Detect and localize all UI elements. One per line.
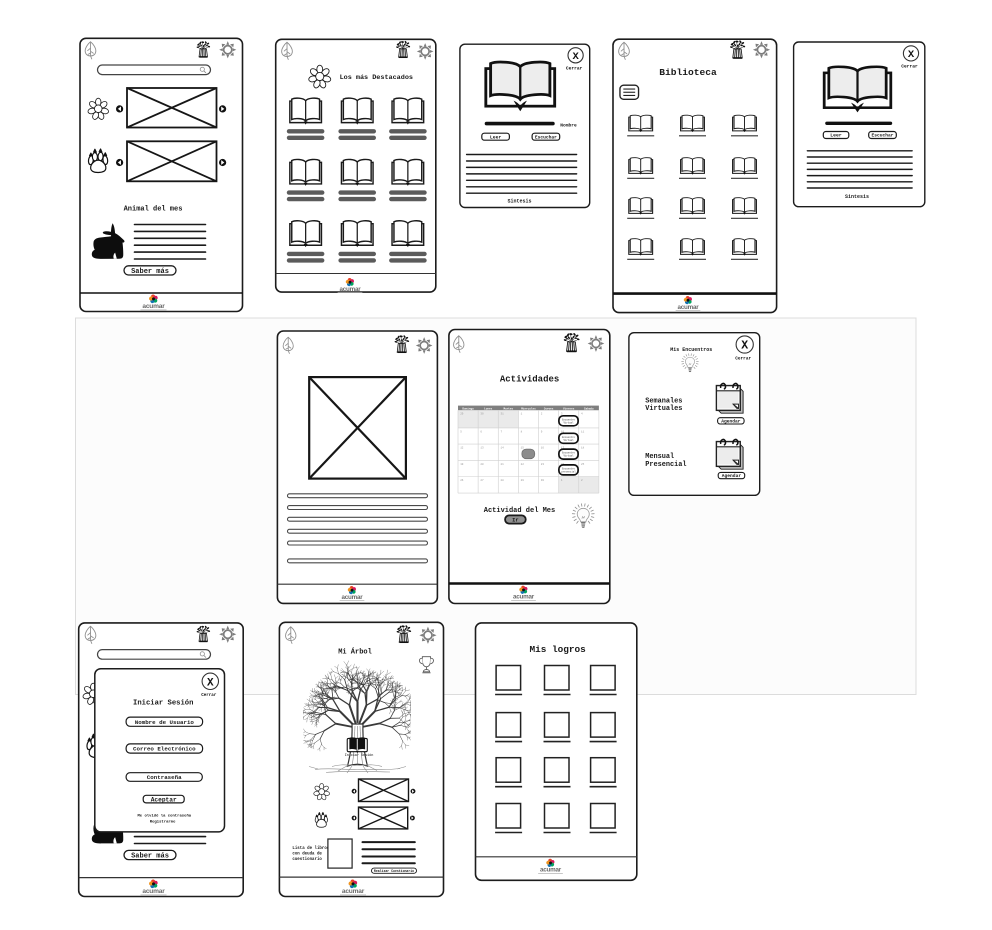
svg-text:Registrarme: Registrarme [150, 820, 176, 825]
svg-text:Saber más: Saber más [131, 268, 169, 276]
svg-text:Correo Electrónico: Correo Electrónico [133, 746, 196, 753]
svg-text:Miercoles: Miercoles [521, 406, 536, 410]
svg-text:Saber más: Saber más [131, 853, 169, 861]
svg-text:Contraseña: Contraseña [147, 774, 182, 781]
svg-text:Agendar: Agendar [721, 419, 741, 425]
svg-text:29: 29 [460, 413, 464, 416]
svg-text:Escuchar: Escuchar [535, 134, 557, 140]
svg-text:Presencial: Presencial [645, 461, 686, 469]
svg-text:acumar: acumar [341, 594, 363, 601]
svg-text:Nombre de Usuario: Nombre de Usuario [135, 719, 195, 726]
svg-text:27: 27 [480, 479, 484, 482]
svg-text:Mis logros: Mis logros [529, 644, 586, 655]
svg-text:Viernes: Viernes [563, 406, 575, 410]
svg-text:Iniciar Sesión: Iniciar Sesión [133, 700, 193, 708]
svg-text:Animal del mes: Animal del mes [124, 206, 183, 214]
svg-text:Mi Árbol: Mi Árbol [338, 648, 372, 657]
svg-text:Actividad del Mes: Actividad del Mes [484, 507, 555, 515]
svg-text:19: 19 [460, 463, 464, 466]
svg-text:Sintesis: Sintesis [845, 194, 869, 200]
svg-text:Actividades: Actividades [500, 375, 559, 385]
svg-text:29: 29 [521, 479, 525, 482]
svg-text:X: X [741, 340, 748, 353]
svg-text:26: 26 [460, 479, 464, 482]
svg-text:Jueves: Jueves [544, 407, 554, 410]
svg-text:12: 12 [460, 447, 464, 450]
svg-text:acumar: acumar [677, 304, 699, 311]
svg-text:Sintesis: Sintesis [507, 198, 531, 204]
svg-text:presencial: presencial [561, 471, 576, 474]
svg-text:Cerrar: Cerrar [201, 694, 217, 698]
svg-text:28: 28 [500, 479, 504, 482]
svg-text:Sabado: Sabado [584, 406, 594, 410]
svg-text:Martes: Martes [503, 407, 513, 410]
svg-text:14: 14 [500, 447, 504, 450]
svg-text:Los más Destacados: Los más Destacados [340, 74, 413, 82]
svg-text:25: 25 [581, 463, 585, 466]
svg-text:Me olvidé la contraseña: Me olvidé la contraseña [137, 813, 191, 818]
svg-text:acumar: acumar [540, 867, 562, 874]
svg-text:Cerrar: Cerrar [566, 66, 583, 72]
svg-text:Agendar: Agendar [722, 473, 742, 479]
svg-text:acumar: acumar [142, 303, 165, 310]
svg-text:Aceptar: Aceptar [151, 796, 177, 803]
svg-text:23: 23 [541, 463, 545, 466]
svg-text:Leer: Leer [830, 133, 842, 139]
svg-text:acumar: acumar [342, 888, 365, 895]
svg-text:Lunes: Lunes [484, 407, 492, 410]
svg-text:Realizar Cuestionario: Realizar Cuestionario [374, 869, 414, 873]
svg-text:con deuda de: con deuda de [292, 852, 322, 857]
svg-text:Domingo: Domingo [462, 406, 474, 410]
svg-text:Virtual: Virtual [563, 439, 574, 442]
svg-text:21: 21 [500, 463, 504, 466]
svg-text:31: 31 [500, 413, 504, 416]
svg-text:Cerrar: Cerrar [735, 356, 751, 361]
svg-text:acumar: acumar [339, 286, 361, 293]
svg-text:Ir: Ir [512, 517, 518, 523]
svg-text:Virtuales: Virtuales [645, 405, 682, 413]
svg-text:X: X [207, 677, 214, 689]
svg-text:22: 22 [521, 463, 525, 466]
svg-text:X: X [908, 49, 915, 61]
svg-text:18: 18 [581, 447, 585, 450]
svg-text:Leer: Leer [490, 134, 502, 140]
svg-text:Escuchar: Escuchar [871, 133, 893, 139]
svg-text:13: 13 [480, 447, 484, 450]
svg-text:Virtual: Virtual [563, 455, 574, 458]
svg-text:Nombre: Nombre [560, 122, 577, 128]
svg-text:acumar: acumar [513, 594, 535, 601]
svg-text:16: 16 [541, 447, 545, 450]
svg-text:Biblioteca: Biblioteca [659, 67, 717, 78]
svg-text:30: 30 [480, 413, 484, 416]
svg-text:cuestionario: cuestionario [292, 857, 322, 862]
svg-text:Mis Encuentros: Mis Encuentros [670, 347, 712, 353]
svg-text:20: 20 [480, 463, 484, 466]
svg-text:acumar: acumar [142, 888, 165, 895]
svg-text:X: X [572, 51, 579, 63]
svg-text:Virtual: Virtual [563, 421, 574, 424]
svg-text:11: 11 [581, 430, 585, 433]
svg-text:Iniciar Sesión: Iniciar Sesión [345, 753, 374, 758]
svg-text:30: 30 [541, 479, 545, 482]
svg-text:Lista de libros: Lista de libros [292, 846, 329, 851]
svg-text:Cerrar: Cerrar [901, 64, 918, 70]
svg-text:15: 15 [521, 447, 525, 450]
